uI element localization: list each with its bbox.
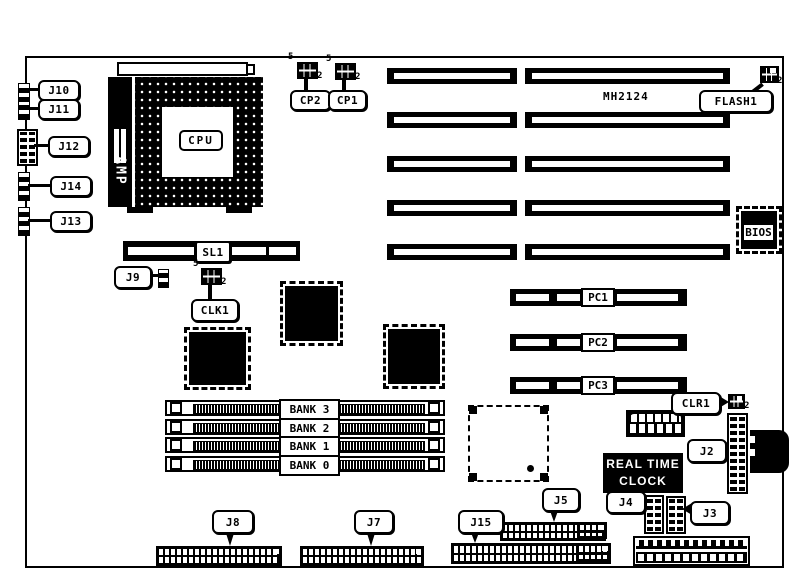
j4-connector	[644, 495, 664, 534]
clr1-pin2: 2	[744, 402, 749, 411]
j14-label: J14	[50, 176, 92, 197]
isa-slot	[387, 200, 517, 216]
j5-label: J5	[542, 488, 580, 512]
aux-header	[577, 522, 607, 539]
cp2-label: CP2	[290, 90, 331, 111]
board-model: MH2124	[603, 90, 649, 103]
j4-label: J4	[606, 491, 646, 514]
pc3-label: PC3	[581, 376, 615, 395]
j10-connector	[18, 83, 30, 103]
socket-foot	[226, 207, 252, 213]
qfp-chip	[184, 327, 251, 390]
j15-label: J15	[458, 510, 504, 534]
cp2-pin5: 5	[288, 53, 293, 62]
keyboard-connector	[750, 430, 789, 473]
isa-slot	[525, 68, 730, 84]
bios-chip: BIOS	[736, 206, 782, 254]
pci-slot-pc1: PC1	[510, 289, 687, 306]
clk1-pointer	[208, 285, 212, 299]
j12-connector	[17, 129, 38, 166]
bank1-label: BANK 1	[279, 436, 340, 457]
j2-label: J2	[687, 439, 727, 463]
cp1-label: CP1	[328, 90, 367, 111]
j11-label: J11	[38, 99, 80, 120]
cpu-retention-notch	[246, 64, 255, 75]
j13-label: J13	[50, 211, 92, 232]
rtc-chip: REAL TIME CLOCK	[603, 453, 683, 493]
clk1-label: CLK1	[191, 299, 239, 322]
cp1-jumper	[335, 63, 356, 80]
isa-slot	[525, 200, 730, 216]
pci-slot-pc2: PC2	[510, 334, 687, 351]
rtc-label-line1: REAL TIME	[606, 456, 679, 473]
j12-pointer	[34, 144, 49, 147]
chip-footprint	[468, 405, 549, 482]
j8-connector	[156, 546, 282, 566]
cp2-pin2: 2	[317, 72, 322, 81]
j2-connector	[727, 413, 748, 494]
bank0-label: BANK 0	[279, 455, 340, 476]
clr1-label: CLR1	[671, 392, 721, 415]
cpu-label: CPU	[179, 130, 223, 151]
amp-bracket: AMP	[108, 77, 132, 207]
cpu-retention-bar	[117, 62, 248, 76]
isa-slot	[525, 244, 730, 260]
isa-slot	[387, 68, 517, 84]
j8-label: J8	[212, 510, 254, 534]
j13-pointer	[28, 219, 51, 222]
isa-slot	[387, 112, 517, 128]
motherboard-diagram: AMP CPU J10 J11 J12 J14 J13 5 2 CP2 5 2 …	[0, 0, 796, 579]
j9-connector	[158, 269, 169, 288]
j10-label: J10	[38, 80, 80, 101]
j3-connector	[666, 496, 686, 534]
qfp-chip	[383, 324, 445, 389]
sl1-label: SL1	[195, 241, 231, 263]
isa-slot	[525, 156, 730, 172]
j12-label: J12	[48, 136, 90, 157]
flash1-label: FLASH1	[699, 90, 773, 113]
qfp-chip	[280, 281, 343, 346]
j11-connector	[18, 101, 30, 120]
clr1-jumper	[728, 394, 745, 409]
flash1-pin2: 2	[777, 77, 782, 86]
isa-slot	[387, 156, 517, 172]
rtc-label-line2: CLOCK	[619, 473, 667, 490]
isa-slot	[525, 112, 730, 128]
bank3-label: BANK 3	[279, 399, 340, 420]
j9-label: J9	[114, 266, 152, 289]
j14-pointer	[28, 184, 51, 187]
pc2-label: PC2	[581, 333, 615, 352]
pci-slot-pc3: PC3	[510, 377, 687, 394]
aux-header	[576, 543, 610, 562]
clk1-pin5: 5	[193, 260, 198, 269]
bios-label: BIOS	[742, 223, 775, 242]
isa-slot	[387, 244, 517, 260]
j3-label: J3	[690, 501, 730, 525]
pc1-label: PC1	[581, 288, 615, 307]
clk1-jumper	[201, 268, 222, 285]
cp1-pin2: 2	[355, 73, 360, 82]
cpu-socket: CPU	[135, 77, 263, 207]
j7-connector	[300, 546, 424, 566]
amp-bracket-label: AMP	[113, 156, 128, 185]
cp2-jumper	[297, 62, 318, 79]
clk1-pin2: 2	[221, 278, 226, 287]
edge-connector	[633, 536, 750, 566]
j7-label: J7	[354, 510, 394, 534]
socket-foot	[127, 207, 153, 213]
cp1-pin5: 5	[326, 55, 331, 64]
